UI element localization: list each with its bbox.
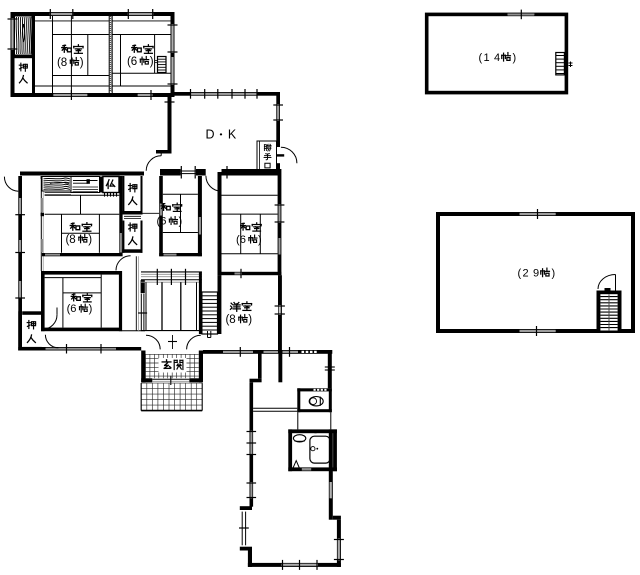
svg-text:K: K <box>228 127 237 141</box>
svg-text:1: 1 <box>483 52 489 64</box>
svg-text:(: ( <box>479 52 483 64</box>
svg-text:(8: (8 <box>65 234 75 246</box>
svg-text:4: 4 <box>494 52 500 64</box>
svg-text:): ) <box>258 234 262 246</box>
svg-text:D: D <box>205 127 214 141</box>
svg-text:(8: (8 <box>225 314 235 326</box>
svg-text:(6: (6 <box>67 303 77 315</box>
svg-text:(6: (6 <box>157 216 167 228</box>
svg-text:): ) <box>89 303 93 315</box>
svg-text:): ) <box>80 57 84 69</box>
svg-text:(8: (8 <box>57 57 67 69</box>
svg-text:): ) <box>178 216 182 228</box>
svg-text:): ) <box>150 56 154 68</box>
svg-text:9: 9 <box>533 268 539 280</box>
svg-text:2: 2 <box>522 268 528 280</box>
svg-text:): ) <box>552 268 556 280</box>
svg-text:•: • <box>220 129 223 139</box>
svg-text:(6: (6 <box>127 56 137 68</box>
svg-text:): ) <box>513 52 517 64</box>
svg-text:(: ( <box>518 268 522 280</box>
svg-text:(6: (6 <box>236 234 246 246</box>
svg-text:): ) <box>88 234 92 246</box>
svg-text:): ) <box>248 314 252 326</box>
